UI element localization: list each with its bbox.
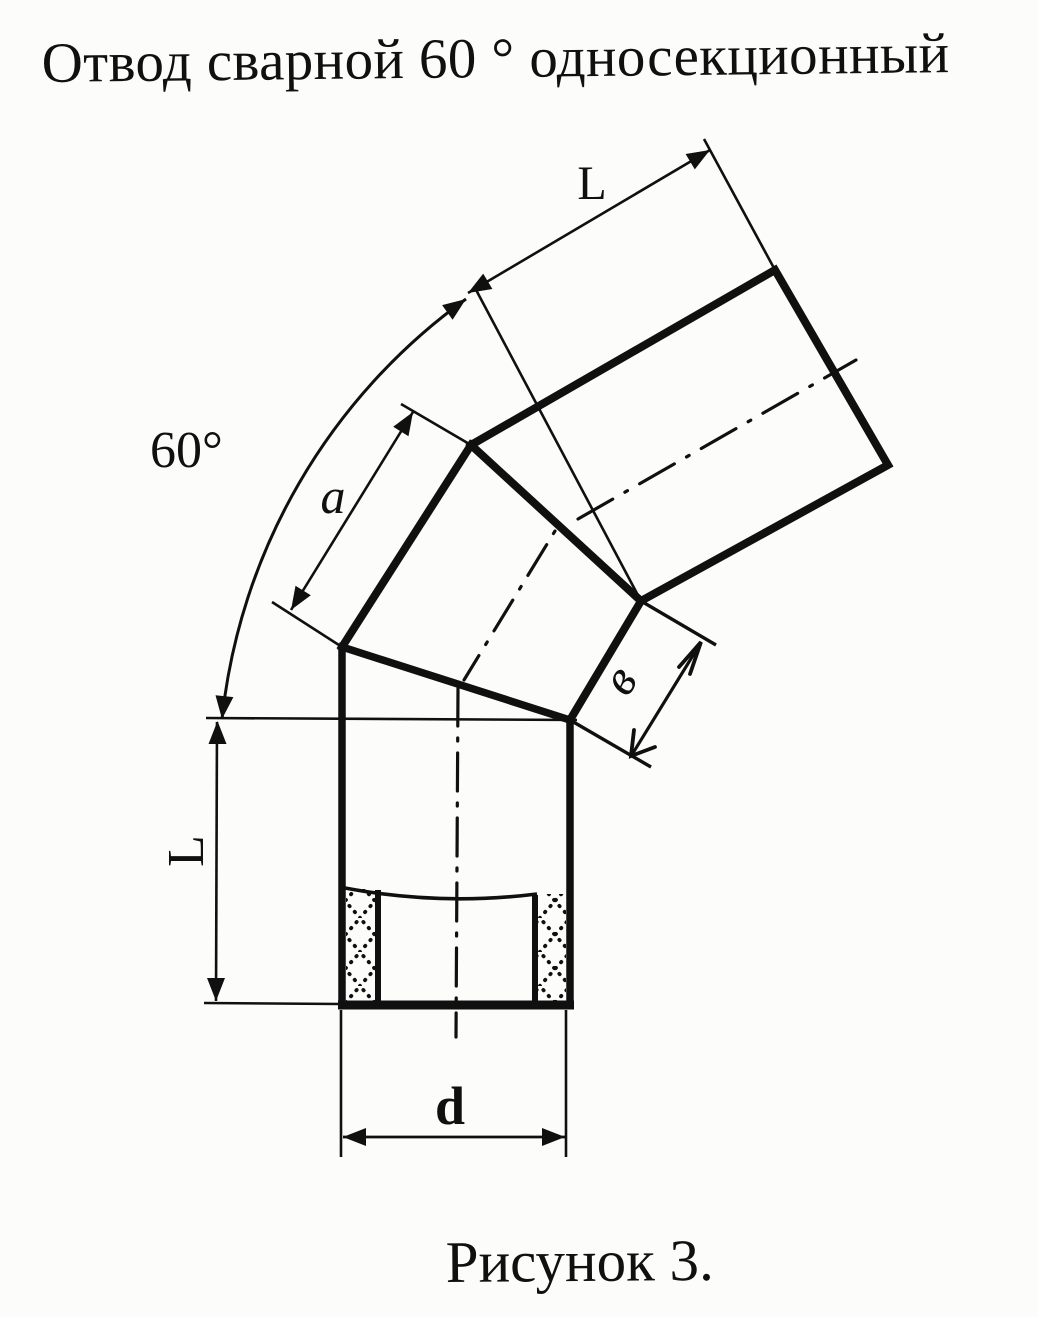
svg-text:a: a — [321, 468, 346, 524]
svg-text:в: в — [589, 655, 648, 704]
svg-text:L: L — [577, 157, 606, 210]
svg-text:d: d — [435, 1076, 465, 1136]
svg-text:L: L — [158, 835, 215, 867]
svg-text:60°: 60° — [150, 422, 223, 479]
